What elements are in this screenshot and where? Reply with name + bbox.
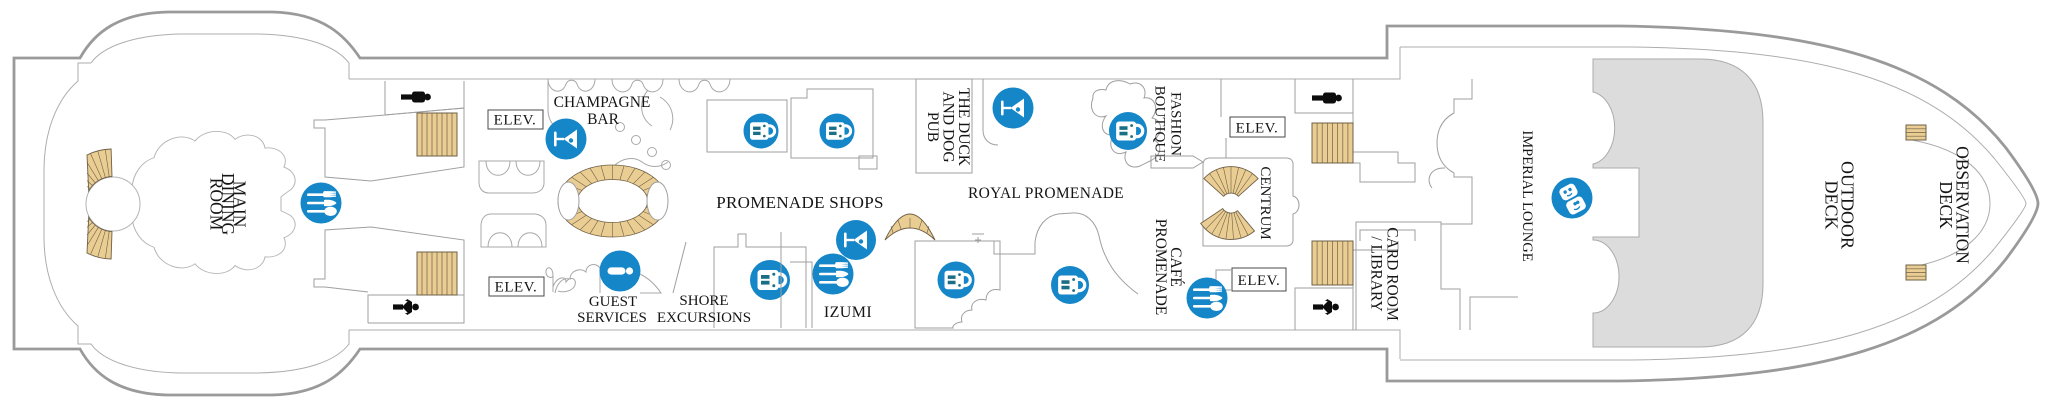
svg-text:MAINDININGROOM: MAINDININGROOM [207,173,250,236]
svg-text:OUTDOORDECK: OUTDOORDECK [1822,161,1858,249]
svg-text:ELEV.: ELEV. [1236,121,1279,137]
svg-text:GUESTSERVICES: GUESTSERVICES [577,294,647,326]
svg-text:IZUMI: IZUMI [824,304,872,321]
svg-text:ELEV.: ELEV. [494,113,537,129]
svg-text:CENTRUM: CENTRUM [1257,166,1273,239]
svg-text:ELEV.: ELEV. [495,280,538,296]
svg-text:IMPERIAL LOUNGE: IMPERIAL LOUNGE [1519,130,1535,261]
svg-text:SHOREEXCURSIONS: SHOREEXCURSIONS [657,293,751,326]
svg-text:ELEV.: ELEV. [1238,273,1281,289]
svg-text:ROYAL PROMENADE: ROYAL PROMENADE [968,185,1124,202]
svg-text:OBSERVATIONDECK: OBSERVATIONDECK [1936,146,1973,264]
svg-text:THE DUCKAND DOGPUB: THE DUCKAND DOGPUB [924,88,972,167]
svg-text:CAFÉPROMENADE: CAFÉPROMENADE [1152,219,1184,315]
svg-text:PROMENADE SHOPS: PROMENADE SHOPS [716,193,883,212]
svg-text:FASHIONBOUTIQUE: FASHIONBOUTIQUE [1152,86,1184,163]
svg-text:CARD ROOM/ LIBRARY: CARD ROOM/ LIBRARY [1368,227,1401,321]
